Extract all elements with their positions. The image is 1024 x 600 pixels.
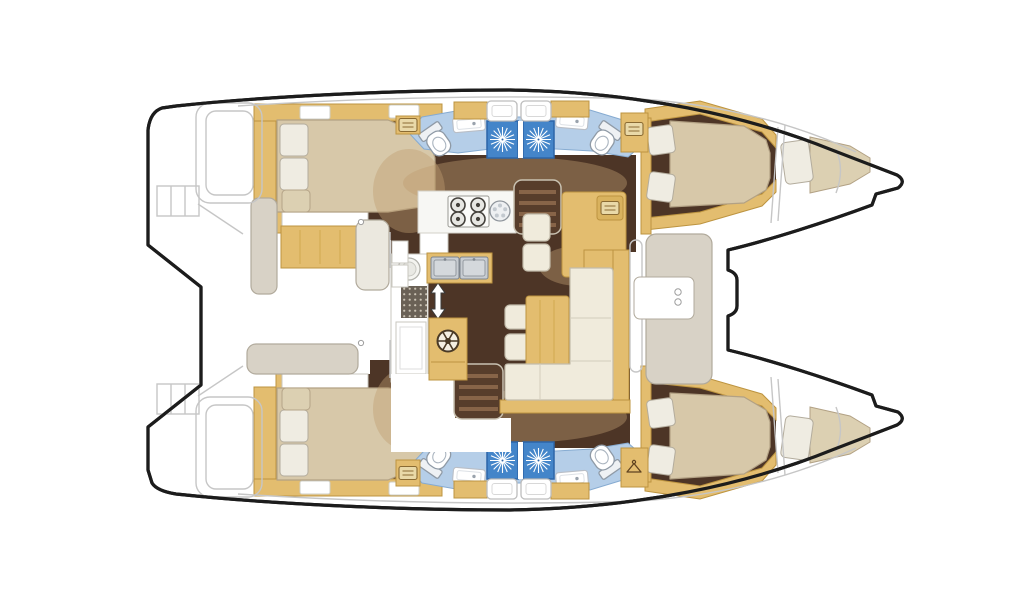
pillow: [280, 444, 308, 476]
pillow: [646, 171, 676, 202]
deck-hatch-icon: [521, 101, 551, 121]
seat-cushion: [523, 214, 550, 241]
fitting-dot: [358, 340, 363, 345]
galley-sink-icon: [460, 257, 488, 279]
double-bed: [670, 121, 770, 207]
deck-hatch-icon: [521, 479, 551, 499]
floor-grate-dots: [401, 286, 427, 318]
shower-divider: [518, 121, 523, 158]
sofa-backrest: [613, 250, 629, 406]
pillow: [780, 415, 814, 460]
coffee-table: [526, 296, 569, 367]
shower-sunburst-icon: [490, 127, 515, 152]
fitting-dot: [358, 219, 363, 224]
deck-hatch-icon: [487, 101, 517, 121]
aft-bench: [247, 344, 358, 374]
pillow: [282, 388, 310, 410]
catamaran-floor-plan: Catamaran interior layout floor plan (to…: [0, 0, 1024, 600]
vent-icon: [399, 467, 417, 480]
deck-hatch-icon: [487, 479, 517, 499]
pillow: [280, 158, 308, 190]
forward-seat-footwell: [634, 277, 694, 319]
shower-sunburst-icon: [526, 448, 551, 473]
cockpit-locker: [392, 241, 408, 263]
vent-icon: [601, 202, 619, 215]
deck-white: [391, 374, 455, 452]
locker: [454, 102, 487, 119]
foredeck: [630, 234, 712, 384]
cup-holder: [675, 299, 681, 305]
double-bed: [670, 393, 770, 479]
pillow: [282, 190, 310, 212]
vent-icon: [399, 119, 417, 132]
galley-sink-icon: [431, 257, 459, 279]
deck-hatch-icon: [300, 106, 330, 119]
pillow: [646, 124, 676, 155]
floor-plan-canvas: Catamaran interior layout floor plan (to…: [0, 0, 1024, 600]
pillow: [280, 410, 308, 442]
seat-cushion: [523, 244, 550, 271]
locker: [551, 483, 589, 499]
sofa-base-trim: [500, 400, 630, 413]
deck-hatch-icon: [300, 481, 330, 494]
pillow: [780, 139, 814, 184]
side-bench: [251, 198, 277, 294]
wardrobe: [621, 448, 648, 487]
cockpit-locker: [392, 265, 408, 287]
corner-seat: [356, 220, 389, 290]
deck-white: [453, 418, 511, 452]
shower-sunburst-icon: [526, 127, 551, 152]
shower-divider: [518, 442, 523, 479]
cockpit-table: [281, 226, 357, 268]
vent-icon: [625, 123, 643, 136]
pillow: [280, 124, 308, 156]
wheel-icon: [438, 331, 459, 352]
locker: [551, 101, 589, 117]
locker: [454, 481, 487, 498]
pillow: [646, 444, 676, 475]
pillow: [646, 397, 676, 428]
cup-holder: [675, 289, 681, 295]
